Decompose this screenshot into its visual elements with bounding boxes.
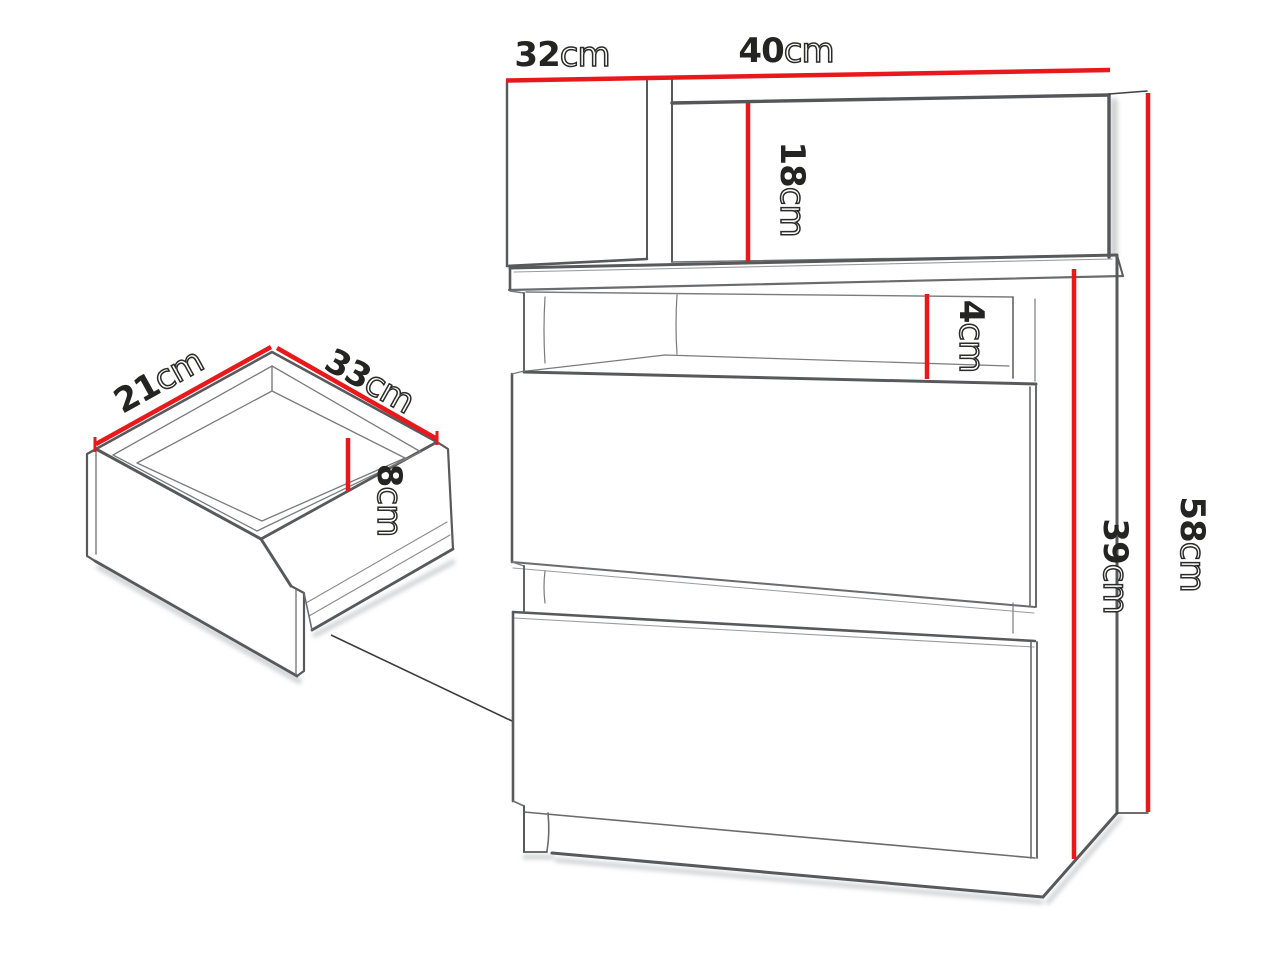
diagram-page: 32cm 40cm 18cm 4cm 39cm 58cm 21cm 33cm 8… — [0, 0, 1280, 960]
dimension-label-40cm: 40cm — [738, 31, 833, 71]
drawer-1 — [512, 371, 1036, 613]
dimension-lines — [95, 70, 1148, 859]
dimension-label-33cm: 33cm — [318, 341, 421, 422]
right-side-panel-top-edge — [1109, 91, 1147, 94]
gap-left-tick — [544, 571, 545, 603]
drawer-front-right-end — [291, 586, 304, 676]
dimension-label-32cm: 32cm — [514, 35, 609, 75]
furniture-dimension-diagram: 32cm 40cm 18cm 4cm 39cm 58cm 21cm 33cm 8… — [0, 0, 1280, 960]
drawer-side-back-end — [437, 442, 453, 549]
drawer-front-bottom-edge — [95, 561, 297, 676]
drawer-2 — [513, 612, 1037, 858]
drawer1-top-edge — [524, 372, 1036, 384]
dimension-label-4cm: 4cm — [951, 300, 991, 373]
niche-ceiling — [526, 292, 1013, 297]
drawer2-bottomleft-step — [513, 801, 524, 806]
shadow-right-bottom — [1048, 818, 1120, 902]
cabinet-bottom-right-edge — [1043, 813, 1117, 897]
shadow-plinth-bottom — [557, 860, 1041, 902]
dimension-label-8cm: 8cm — [369, 464, 409, 537]
niche-left-step — [510, 291, 524, 293]
shadow-drawer-front-bottom — [99, 567, 299, 681]
dimension-label-18cm: 18cm — [772, 141, 812, 236]
drawer1-topleft-step — [512, 371, 524, 374]
drawer-front-top-edge — [96, 449, 261, 539]
plinth-bottom-edge — [552, 853, 1043, 897]
back-panel-top-edge — [672, 95, 1109, 103]
dimension-label-58cm: 58cm — [1172, 496, 1212, 591]
drawer2-top-inner-line — [514, 618, 1034, 647]
niche-mid-tick — [676, 295, 677, 354]
niche-left-tick — [544, 297, 545, 363]
drawer2-top-edge — [513, 612, 1035, 641]
drawer-front-top-edge-end — [261, 539, 291, 586]
foot-front-edge — [547, 813, 549, 851]
drawer-side-bottom-edge — [312, 549, 453, 630]
cabinet-top-section — [507, 78, 1147, 266]
niche-floor-back-edge — [527, 355, 1009, 371]
drawer-front-left-end — [87, 449, 96, 561]
shadows — [99, 102, 1120, 902]
drawer2-bottom-edge — [524, 812, 1035, 858]
drawer-side-front-end — [304, 593, 312, 630]
drawer1-bottom-inner-line — [513, 568, 1034, 613]
drawer1-bottom-edge — [512, 562, 1035, 607]
pointer-line — [331, 635, 512, 721]
dimension-label-39cm: 39cm — [1095, 518, 1135, 613]
dimension-labels: 32cm 40cm 18cm 4cm 39cm 58cm 21cm 33cm 8… — [107, 31, 1212, 614]
slab-front-edge — [509, 276, 1123, 290]
